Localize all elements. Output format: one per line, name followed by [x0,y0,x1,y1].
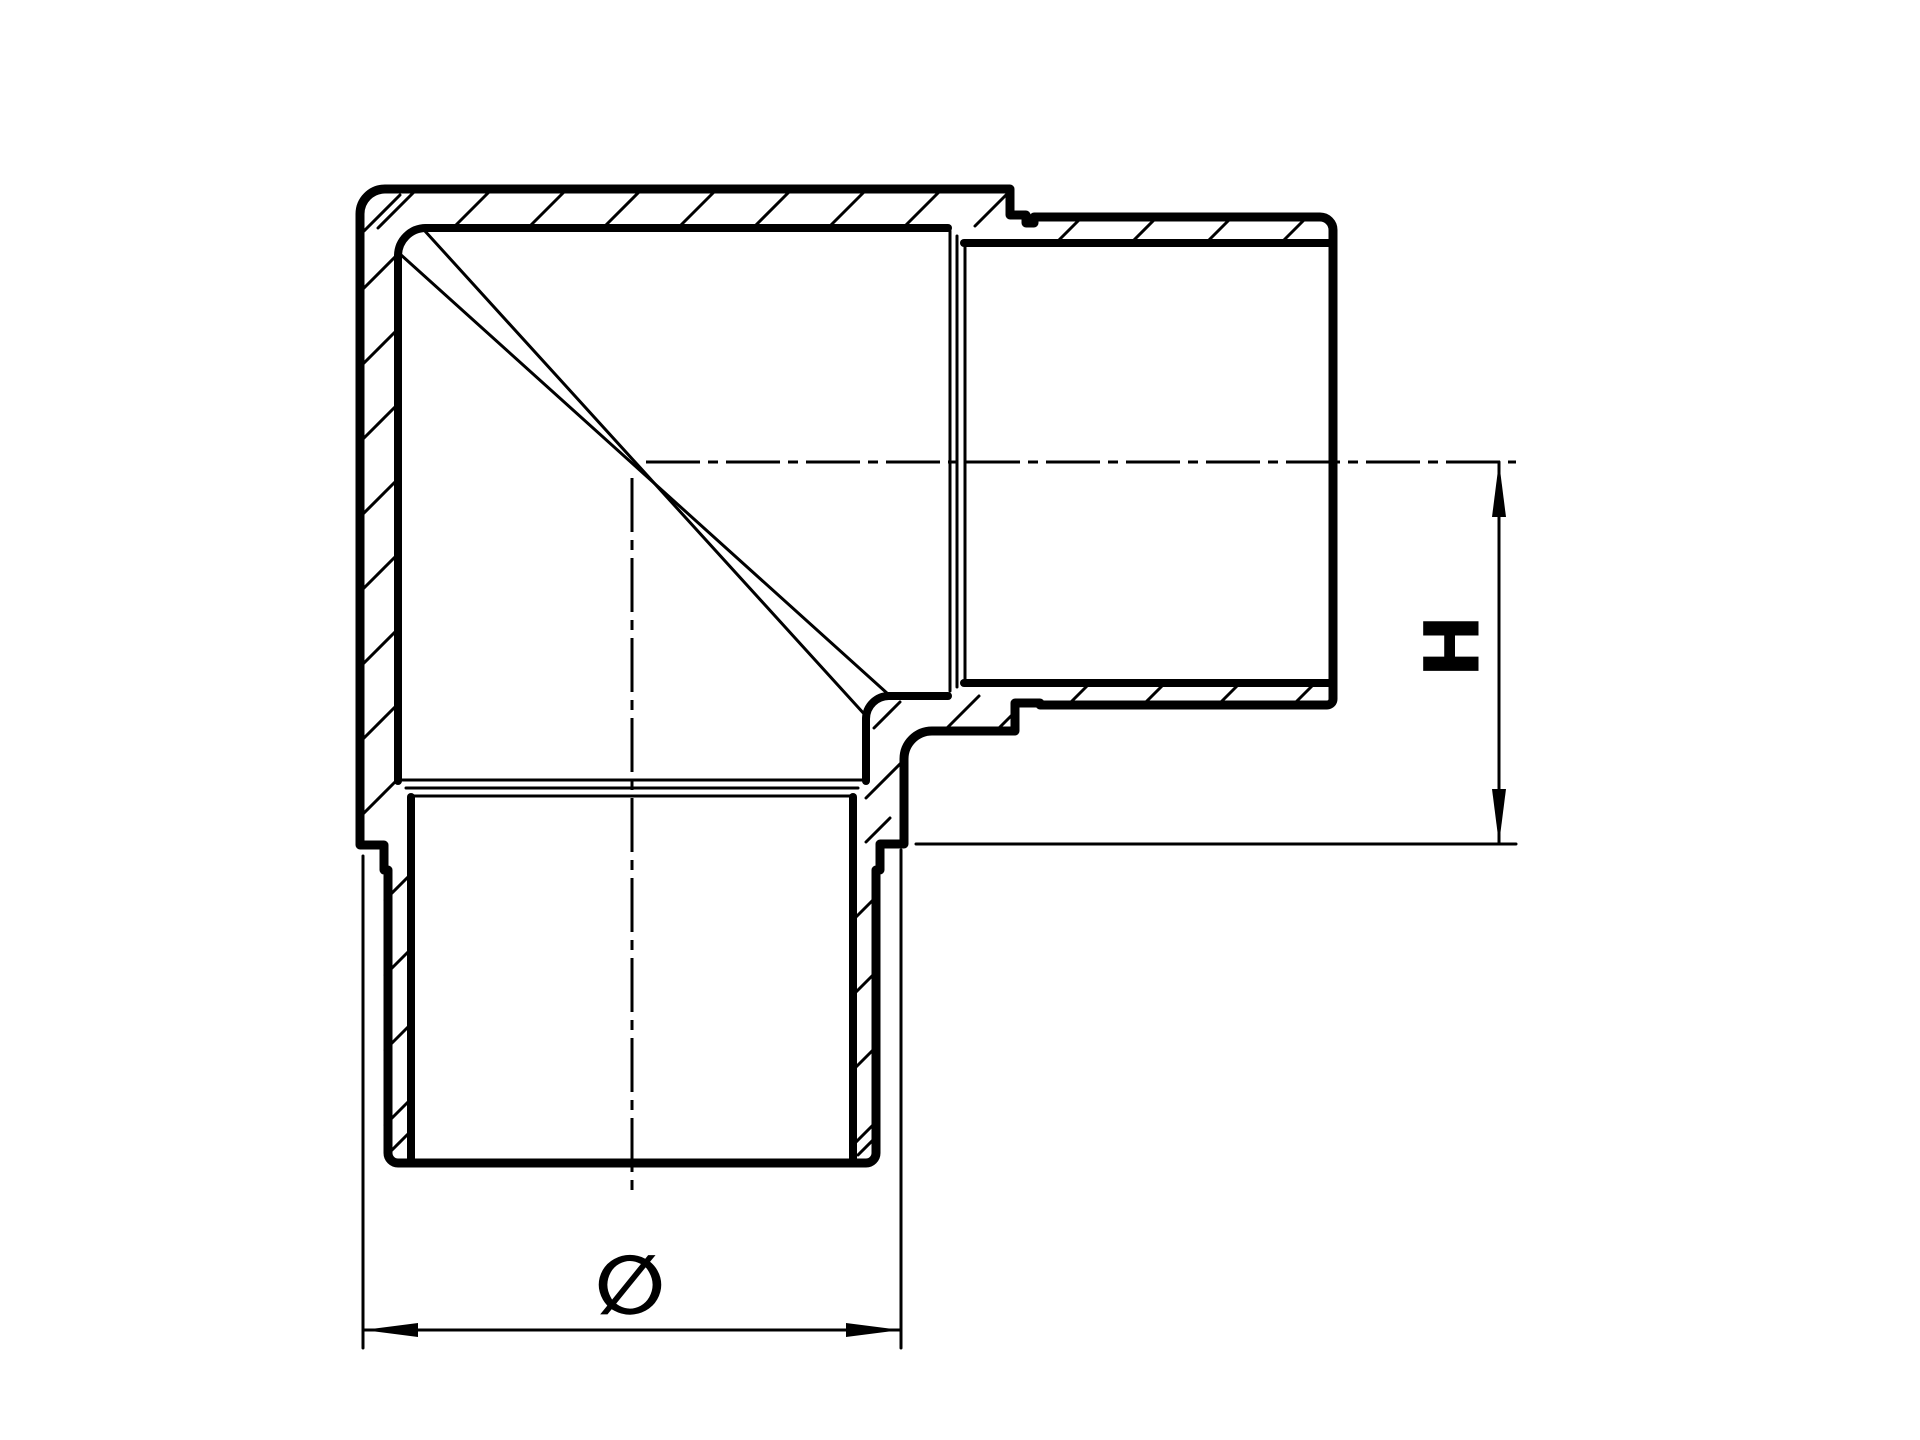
hatch-line [753,189,792,228]
bore-corner-fillet-topleft [398,228,426,256]
dia-arrowhead-left [363,1323,418,1337]
h-arrowhead-down [1492,789,1506,844]
miter-line [400,254,888,694]
dimension-h-label: H [1408,614,1497,678]
hatch-line [360,254,398,292]
hatch-line [360,329,398,367]
drawing-sheet: H ∅ [0,0,1920,1440]
hatch-line [866,818,890,842]
hatch-line [866,760,904,798]
dia-arrowhead-right [846,1323,901,1337]
centerlines [632,462,1516,1198]
hatch-line [360,629,398,667]
hatch-line [944,696,979,731]
hatch-line [903,189,942,228]
hatch-line [453,189,492,228]
hatch-line [360,554,398,592]
hatch-line [360,704,398,742]
hatch-line [528,189,567,228]
technical-drawing-canvas: H ∅ [0,0,1920,1440]
hatch-line [360,479,398,517]
elbow-outer-contour [360,189,1333,1163]
hatch-line [678,189,717,228]
diameter-symbol: ∅ [595,1239,665,1334]
hatch-line [360,404,398,442]
elbow-bore-contour [398,228,1329,1159]
hatch-line [828,189,867,228]
hatch-line [603,189,642,228]
h-arrowhead-up [1492,462,1506,517]
dimension-h: H [916,462,1516,844]
section-hatching [360,189,1315,1155]
hatch-line [975,191,1010,226]
hatch-line [378,189,417,228]
hatch-line [874,702,900,728]
miter-seam-lines [400,230,888,716]
elbow-outline-path [360,189,1333,1163]
hatch-line [360,779,398,817]
